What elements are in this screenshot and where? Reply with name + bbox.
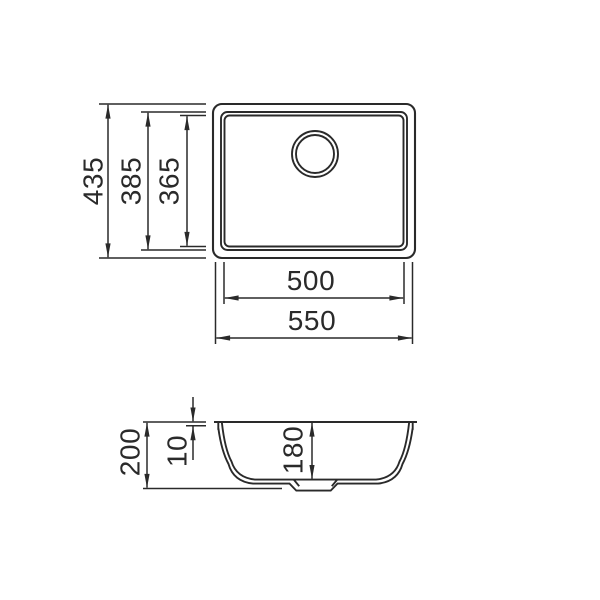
- drain-boss-left-edge: [294, 480, 299, 487]
- side-view-dimensions: 200 10 180: [115, 397, 313, 489]
- top-view-dimensions: 435 385 365 500 550: [78, 104, 413, 344]
- top-view: [213, 104, 415, 258]
- dim-label-width-overall: 550: [288, 305, 337, 336]
- dim-bowl-depth: 180: [278, 423, 313, 479]
- drain-outer-circle: [292, 131, 338, 177]
- sink-rim-outline: [221, 112, 407, 250]
- dim-label-height-bowl: 365: [154, 157, 185, 206]
- dim-depth-overall: 200: [115, 422, 283, 489]
- drain-inner-circle: [296, 135, 334, 173]
- dim-label-depth-overall: 200: [115, 428, 146, 477]
- bowl-profile-inner: [222, 423, 409, 480]
- dim-label-bowl-depth: 180: [278, 426, 309, 475]
- dim-label-width-bowl: 500: [287, 265, 336, 296]
- dim-rim-thickness: 10: [162, 397, 207, 467]
- dim-width-bowl: 500: [224, 262, 404, 304]
- sink-outer-outline: [213, 104, 415, 258]
- bowl-profile-outer: [218, 429, 412, 491]
- dim-label-height-overall: 435: [78, 157, 109, 206]
- dim-label-rim-thickness: 10: [162, 435, 193, 467]
- sink-technical-drawing: 435 385 365 500 550: [0, 0, 600, 600]
- dim-label-height-rim: 385: [116, 157, 147, 206]
- side-view: [214, 422, 417, 491]
- dim-height-bowl: 365: [154, 116, 207, 247]
